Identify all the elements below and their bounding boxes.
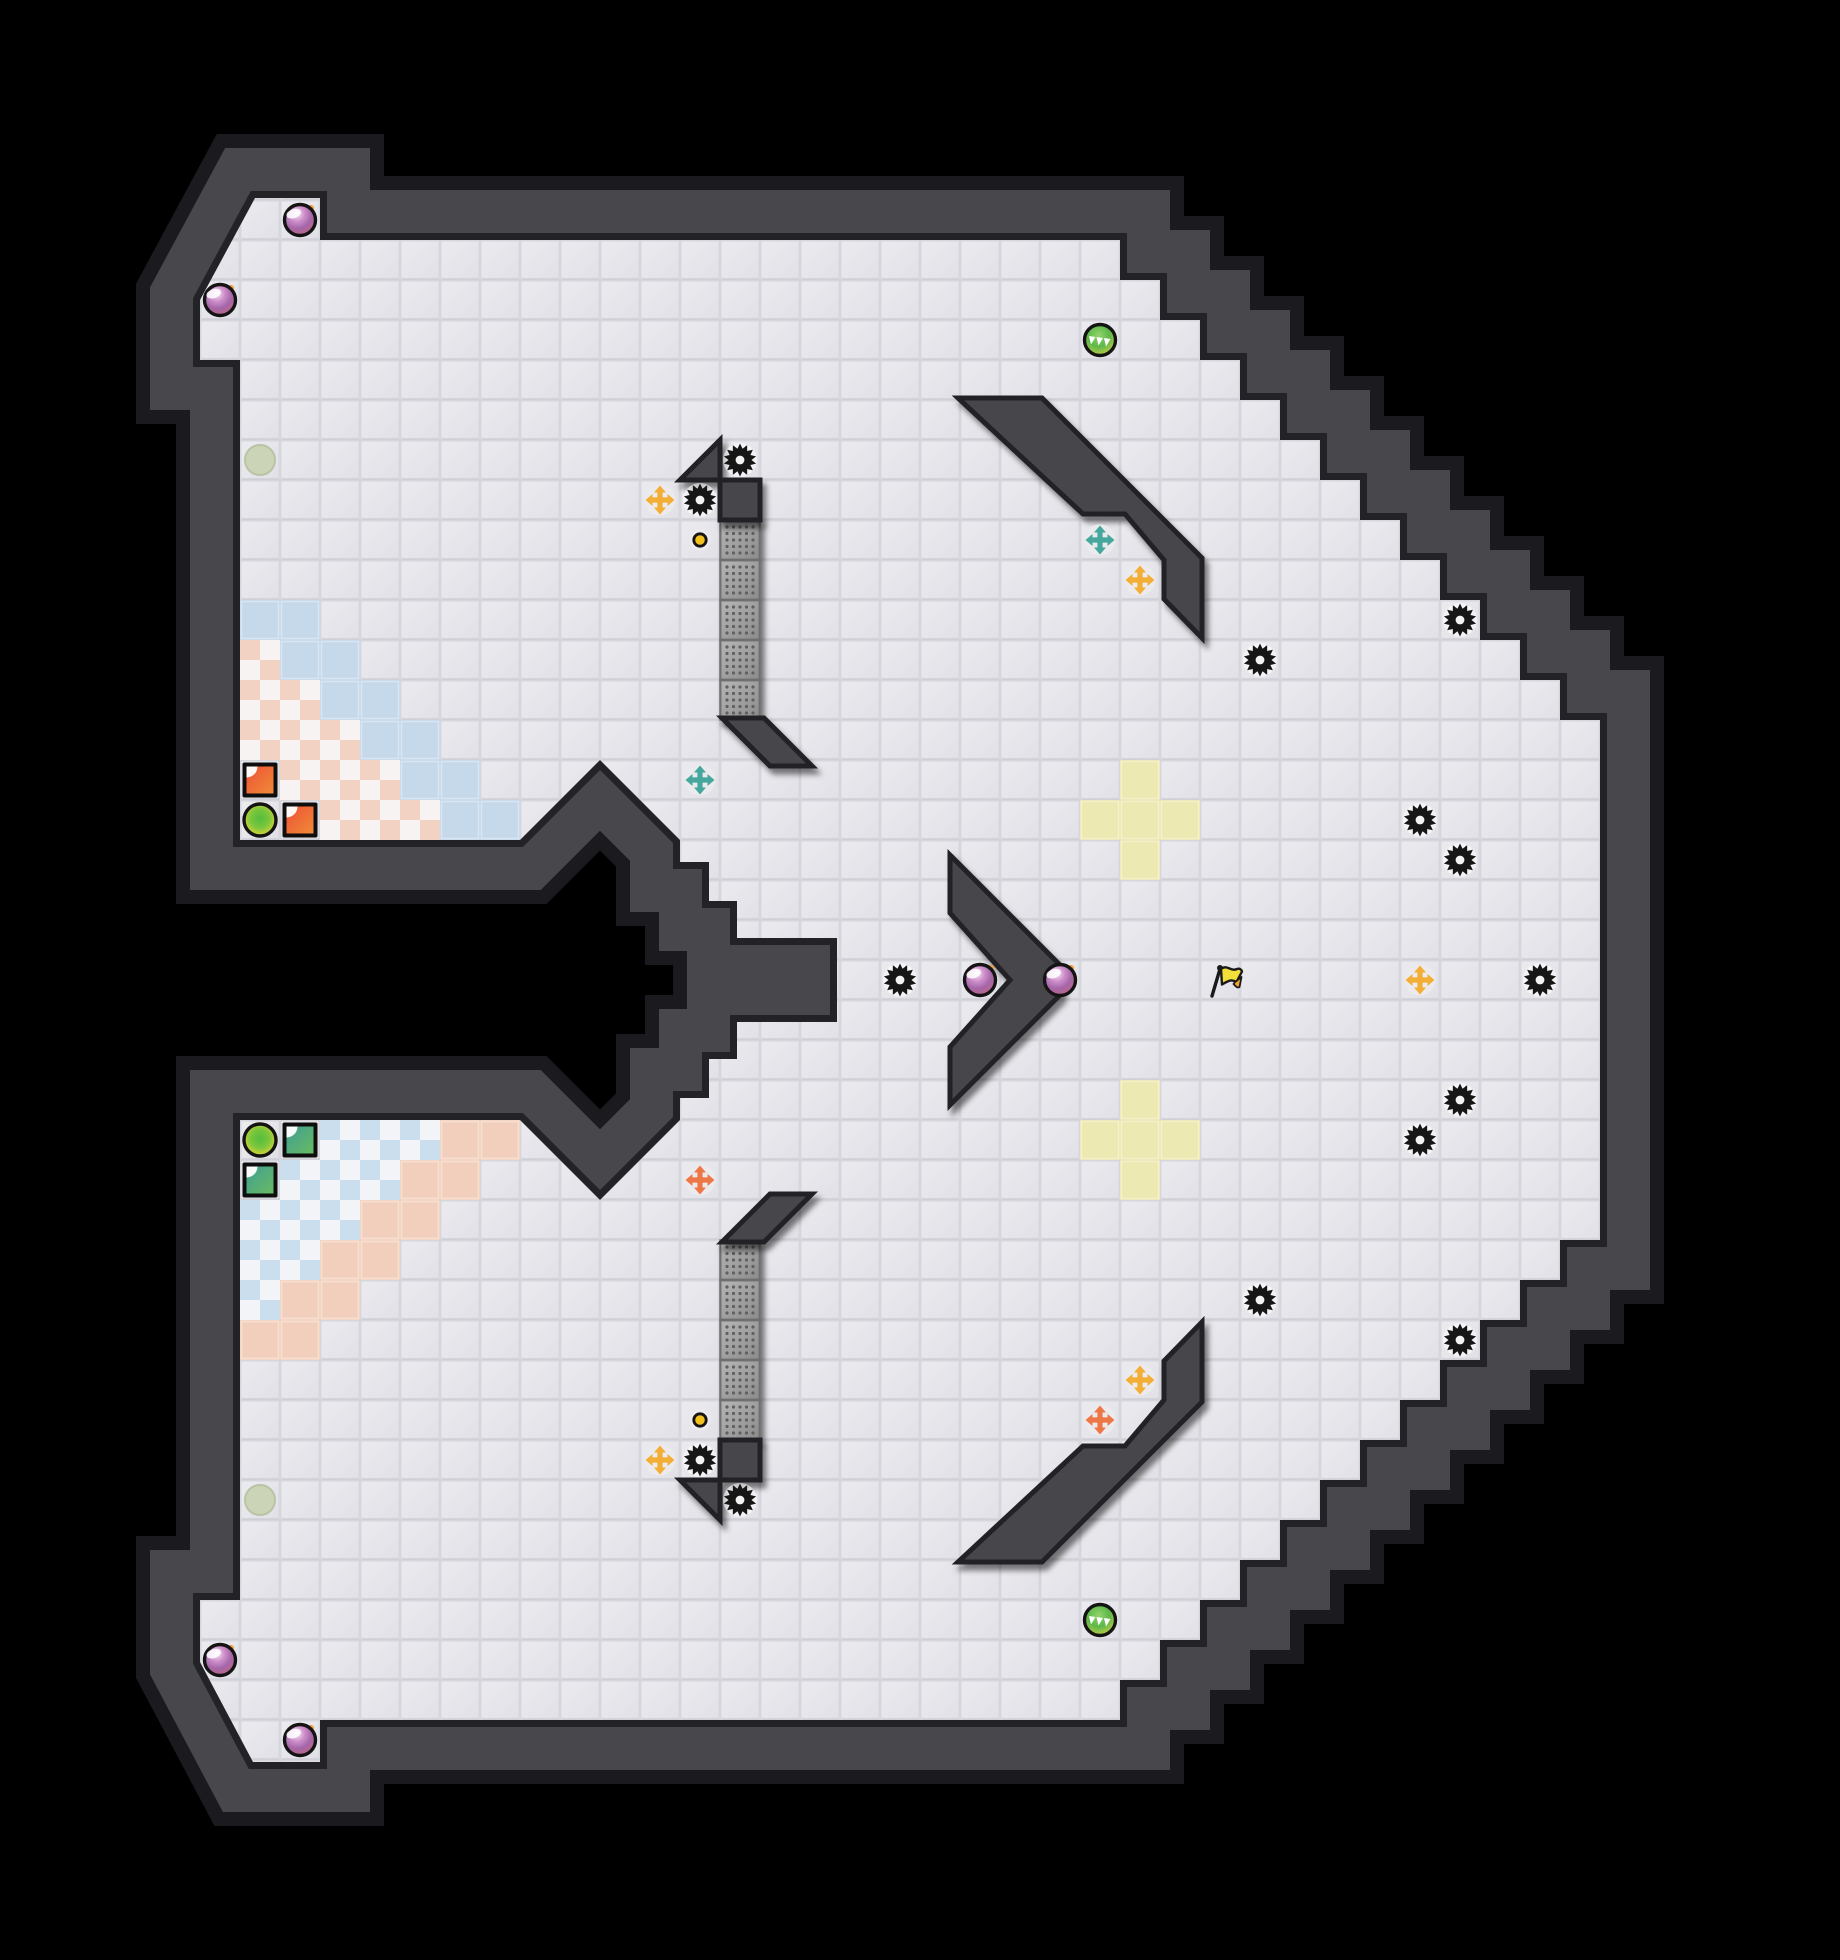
blue-endzone-tile xyxy=(320,1160,360,1200)
red-team-tile xyxy=(360,1200,400,1240)
wall-block xyxy=(720,1440,760,1480)
button-dot xyxy=(694,1414,706,1426)
inactive-portal-body xyxy=(245,1485,275,1515)
yellow-team-tile xyxy=(1120,1120,1160,1160)
red-flag-station-icon xyxy=(283,803,318,838)
inactive-portal-icon xyxy=(245,445,275,475)
bomb-icon xyxy=(965,965,996,996)
boost-icon xyxy=(645,485,676,516)
powerup-icon xyxy=(1085,325,1116,356)
spike-icon xyxy=(683,483,717,517)
red-endzone-tile xyxy=(320,800,360,840)
yellow-team-tile xyxy=(1080,1120,1120,1160)
red-team-tile xyxy=(400,1160,440,1200)
portal-icon xyxy=(244,1124,276,1156)
red-team-tile xyxy=(280,1280,320,1320)
spike-icon xyxy=(1443,1323,1477,1357)
yellow-team-tile xyxy=(1160,800,1200,840)
bomb-body xyxy=(205,285,236,316)
red-team-tile xyxy=(440,1120,480,1160)
spike-hole xyxy=(1456,856,1465,865)
red-endzone-tile xyxy=(240,720,280,760)
boost-icon xyxy=(685,1165,716,1196)
map-canvas xyxy=(0,0,1840,1960)
gate-tile xyxy=(720,1280,760,1320)
blue-endzone-tile xyxy=(240,1280,280,1320)
inactive-portal-icon xyxy=(245,1485,275,1515)
gate-tile xyxy=(720,1360,760,1400)
blue-flag-station-icon xyxy=(243,1163,278,1198)
boost-icon xyxy=(1405,965,1436,996)
red-endzone-tile xyxy=(280,680,320,720)
spike-hole xyxy=(1536,976,1545,985)
blue-team-tile xyxy=(440,800,480,840)
blue-team-tile xyxy=(240,600,280,640)
red-endzone-tile xyxy=(280,720,320,760)
boost-icon xyxy=(645,1445,676,1476)
red-team-tile xyxy=(440,1160,480,1200)
wall-block xyxy=(720,480,760,520)
inactive-portal-body xyxy=(245,445,275,475)
tagpro-map-preview xyxy=(0,0,1840,1960)
yellow-team-tile xyxy=(1080,800,1120,840)
bomb-body xyxy=(965,965,996,996)
spike-hole xyxy=(736,1496,745,1505)
gate-tile xyxy=(720,1320,760,1360)
gate-tile xyxy=(720,1240,760,1280)
blue-endzone-tile xyxy=(280,1240,320,1280)
blue-endzone-tile xyxy=(280,1200,320,1240)
blue-flag-station-icon xyxy=(283,1123,318,1158)
spike-icon xyxy=(723,1483,757,1517)
blue-team-tile xyxy=(280,640,320,680)
spike-hole xyxy=(1256,1296,1265,1305)
spike-hole xyxy=(1256,656,1265,665)
blue-team-tile xyxy=(320,680,360,720)
blue-team-tile xyxy=(400,760,440,800)
blue-endzone-tile xyxy=(400,1120,440,1160)
yellow-team-tile xyxy=(1120,1160,1160,1200)
blue-team-tile xyxy=(360,680,400,720)
blue-team-tile xyxy=(320,640,360,680)
blue-endzone-tile xyxy=(320,1200,360,1240)
red-team-tile xyxy=(480,1120,520,1160)
gate-tile xyxy=(720,640,760,680)
spike-hole xyxy=(1456,1336,1465,1345)
red-endzone-tile xyxy=(240,640,280,680)
red-team-tile xyxy=(400,1200,440,1240)
button-icon xyxy=(689,1409,711,1431)
bomb-icon xyxy=(205,1645,236,1676)
boost-center xyxy=(1137,1377,1143,1383)
blue-endzone-tile xyxy=(240,1200,280,1240)
blue-team-tile xyxy=(280,600,320,640)
yellow-team-tile xyxy=(1120,760,1160,800)
yellow-team-tile xyxy=(1120,1080,1160,1120)
spike-icon xyxy=(1443,603,1477,637)
spike-hole xyxy=(896,976,905,985)
bomb-body xyxy=(1045,965,1076,996)
blue-team-tile xyxy=(400,720,440,760)
boost-center xyxy=(1417,977,1423,983)
red-endzone-tile xyxy=(360,800,400,840)
spike-icon xyxy=(1443,1083,1477,1117)
blue-team-tile xyxy=(360,720,400,760)
boost-center xyxy=(697,777,703,783)
spike-hole xyxy=(696,1456,705,1465)
bomb-icon xyxy=(1045,965,1076,996)
bomb-body xyxy=(205,1645,236,1676)
yellow-team-tile xyxy=(1160,1120,1200,1160)
red-endzone-tile xyxy=(320,720,360,760)
red-team-tile xyxy=(320,1280,360,1320)
boost-icon xyxy=(685,765,716,796)
bomb-icon xyxy=(285,205,316,236)
bomb-icon xyxy=(205,285,236,316)
red-team-tile xyxy=(360,1240,400,1280)
boost-center xyxy=(1137,577,1143,583)
yellow-team-tile xyxy=(1120,800,1160,840)
red-endzone-tile xyxy=(280,760,320,800)
boost-icon xyxy=(1085,525,1116,556)
portal-body xyxy=(244,804,276,836)
boost-center xyxy=(697,1177,703,1183)
spike-hole xyxy=(736,456,745,465)
bomb-body xyxy=(285,1725,316,1756)
gate-tile xyxy=(720,560,760,600)
red-endzone-tile xyxy=(320,760,360,800)
boost-icon xyxy=(1085,1405,1116,1436)
spike-icon xyxy=(1403,1123,1437,1157)
portal-body xyxy=(244,1124,276,1156)
boost-center xyxy=(657,1457,663,1463)
boost-icon xyxy=(1125,1365,1156,1396)
gate-tile xyxy=(720,1400,760,1440)
button-icon xyxy=(689,529,711,551)
spike-hole xyxy=(1456,616,1465,625)
blue-team-tile xyxy=(480,800,520,840)
gate-tile xyxy=(720,520,760,560)
spike-icon xyxy=(1523,963,1557,997)
spike-icon xyxy=(883,963,917,997)
red-team-tile xyxy=(240,1320,280,1360)
spike-hole xyxy=(1416,1136,1425,1145)
boost-icon xyxy=(1125,565,1156,596)
spike-icon xyxy=(723,443,757,477)
yellow-team-tile xyxy=(1120,840,1160,880)
gate-tile xyxy=(720,680,760,720)
spike-icon xyxy=(1243,643,1277,677)
red-team-tile xyxy=(280,1320,320,1360)
portal-icon xyxy=(244,804,276,836)
spike-icon xyxy=(1403,803,1437,837)
boost-center xyxy=(1097,537,1103,543)
boost-center xyxy=(1097,1417,1103,1423)
blue-endzone-tile xyxy=(360,1160,400,1200)
spike-hole xyxy=(696,496,705,505)
red-team-tile xyxy=(320,1240,360,1280)
red-flag-station-icon xyxy=(243,763,278,798)
blue-endzone-tile xyxy=(320,1120,360,1160)
powerup-icon xyxy=(1085,1605,1116,1636)
blue-team-tile xyxy=(440,760,480,800)
bomb-body xyxy=(285,205,316,236)
blue-endzone-tile xyxy=(240,1240,280,1280)
gate-tile xyxy=(720,600,760,640)
spike-icon xyxy=(1243,1283,1277,1317)
spike-icon xyxy=(683,1443,717,1477)
blue-endzone-tile xyxy=(360,1120,400,1160)
spike-icon xyxy=(1443,843,1477,877)
bomb-icon xyxy=(285,1725,316,1756)
red-endzone-tile xyxy=(240,680,280,720)
button-dot xyxy=(694,534,706,546)
boost-center xyxy=(657,497,663,503)
spike-hole xyxy=(1416,816,1425,825)
spike-hole xyxy=(1456,1096,1465,1105)
red-endzone-tile xyxy=(400,800,440,840)
blue-endzone-tile xyxy=(280,1160,320,1200)
red-endzone-tile xyxy=(360,760,400,800)
